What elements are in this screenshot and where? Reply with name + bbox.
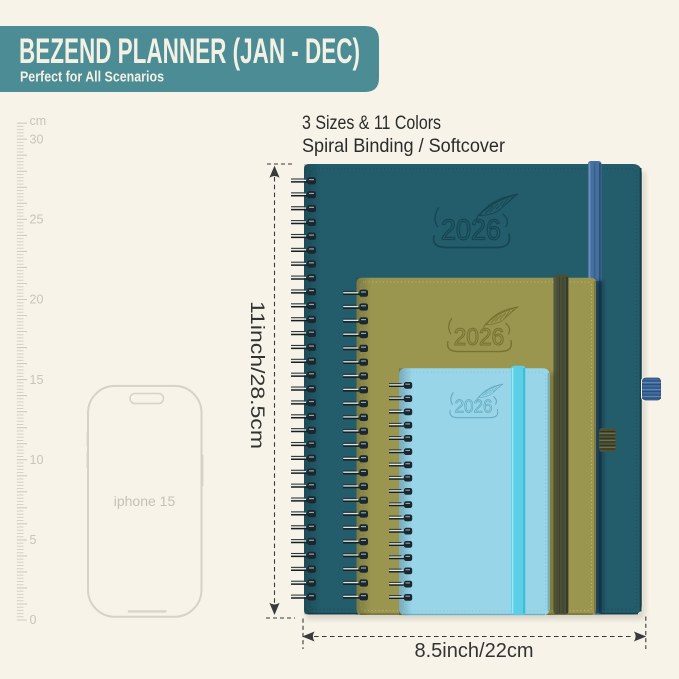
- svg-text:15: 15: [30, 373, 44, 387]
- svg-text:cm: cm: [30, 114, 47, 128]
- svg-text:20: 20: [30, 293, 44, 307]
- svg-text:3 Sizes & 11 Colors: 3 Sizes & 11 Colors: [302, 112, 441, 134]
- svg-text:Spiral Binding / Softcover: Spiral Binding / Softcover: [302, 135, 505, 157]
- svg-text:0: 0: [30, 613, 37, 627]
- svg-text:Perfect for All Scenarios: Perfect for All Scenarios: [20, 70, 164, 86]
- svg-text:8.5inch/22cm: 8.5inch/22cm: [415, 640, 534, 662]
- svg-text:iphone 15: iphone 15: [114, 493, 176, 509]
- svg-text:30: 30: [30, 132, 44, 146]
- svg-text:25: 25: [30, 213, 44, 227]
- svg-text:BEZEND PLANNER (JAN - DEC): BEZEND PLANNER (JAN - DEC): [19, 32, 360, 71]
- svg-text:11inch/28.5cm: 11inch/28.5cm: [246, 301, 267, 449]
- svg-text:5: 5: [30, 533, 37, 547]
- svg-text:10: 10: [30, 453, 44, 467]
